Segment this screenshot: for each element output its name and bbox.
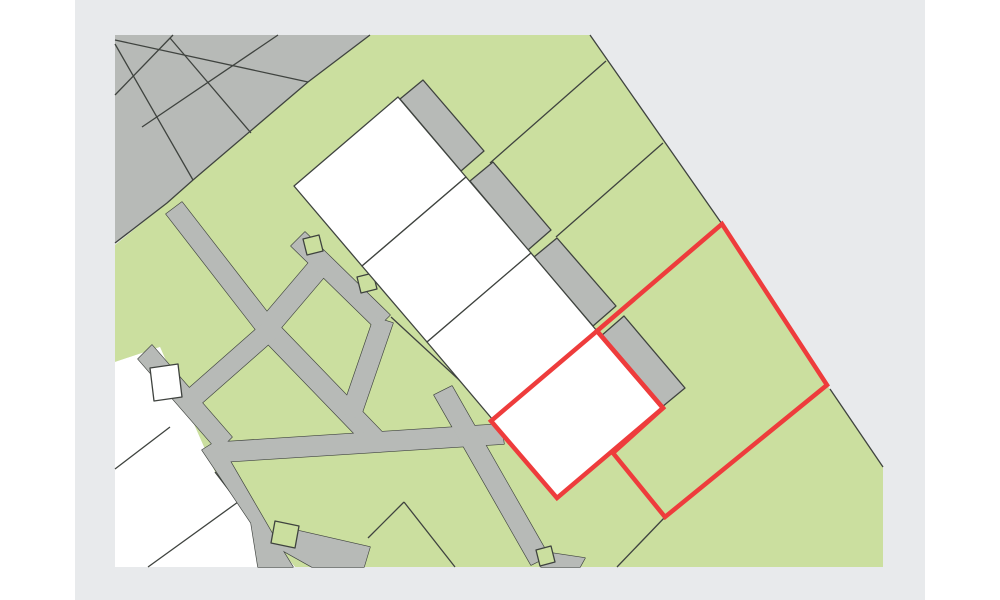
white-notch-t-junction [150, 364, 182, 401]
green-notch-upper-1 [303, 235, 323, 255]
app-window [0, 0, 1000, 600]
green-notch-bottom [536, 546, 555, 566]
green-notch-lower [271, 521, 299, 548]
parcel-map-viewport[interactable] [0, 0, 1000, 600]
